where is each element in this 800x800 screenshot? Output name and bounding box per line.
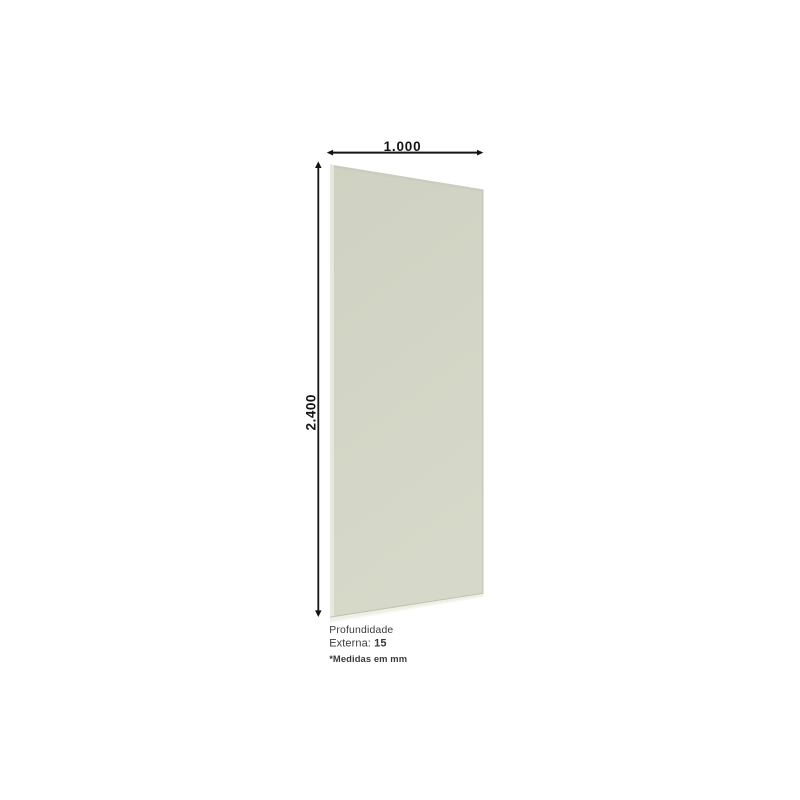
svg-text:*Medidas em mm: *Medidas em mm: [329, 653, 407, 664]
svg-text:1.000: 1.000: [384, 139, 422, 154]
svg-text:Externa: 15: Externa: 15: [329, 637, 386, 649]
svg-text:2.400: 2.400: [303, 394, 318, 430]
svg-text:Profundidade: Profundidade: [329, 625, 393, 636]
